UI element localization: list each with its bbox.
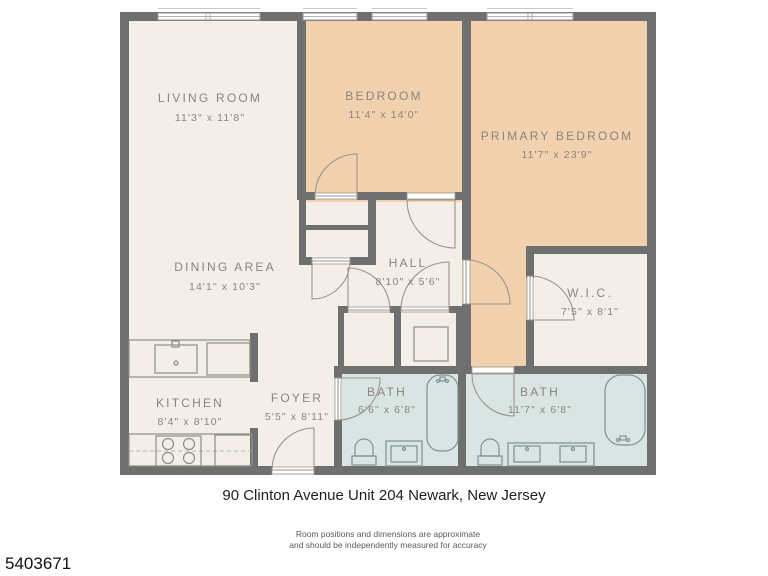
room-label-foyer: FOYER bbox=[271, 391, 323, 405]
room-label-bath-1: BATH bbox=[367, 385, 407, 399]
room-dims-kitchen: 8'4" x 8'10" bbox=[158, 416, 223, 428]
wall-segment bbox=[462, 16, 471, 198]
room-dims-living-room: 11'3" x 11'8" bbox=[175, 112, 245, 124]
wall-segment bbox=[462, 366, 472, 374]
wall-segment bbox=[394, 313, 401, 368]
address-title: 90 Clinton Avenue Unit 204 Newark, New J… bbox=[222, 487, 546, 504]
wall-segment bbox=[458, 366, 466, 466]
listing-id: 5403671 bbox=[5, 554, 71, 573]
wall-segment bbox=[299, 198, 306, 262]
wall-segment bbox=[514, 366, 656, 374]
room-dims-bedroom: 11'4" x 14'0" bbox=[348, 109, 419, 121]
wall-segment bbox=[350, 257, 376, 265]
window bbox=[303, 9, 357, 21]
wall-segment bbox=[120, 466, 272, 475]
room-label-dining-area: DINING AREA bbox=[174, 260, 276, 274]
window bbox=[487, 9, 573, 21]
wall-segment bbox=[462, 304, 471, 372]
room-label-hall: HALL bbox=[389, 256, 428, 270]
wall-segment bbox=[390, 306, 401, 313]
room-dims-wic: 7'5" x 8'1" bbox=[561, 306, 619, 318]
wall-segment bbox=[526, 254, 534, 278]
room-dims-bath-2: 11'7" x 6'8" bbox=[508, 404, 572, 416]
room-dims-primary-bedroom: 11'7" x 23'9" bbox=[521, 149, 592, 161]
wall-segment bbox=[647, 12, 656, 475]
wall-segment bbox=[334, 420, 342, 466]
wall-segment bbox=[456, 313, 462, 368]
wall-segment bbox=[462, 198, 471, 260]
room-dims-hall: 8'10" x 5'6" bbox=[376, 276, 441, 288]
window bbox=[158, 9, 260, 21]
room-dims-dining-area: 14'1" x 10'3" bbox=[189, 281, 261, 293]
wall-segment bbox=[250, 333, 258, 382]
room-label-living-room: LIVING ROOM bbox=[158, 91, 262, 105]
wall-segment bbox=[368, 198, 376, 265]
wall-segment bbox=[357, 192, 407, 200]
wall-segment bbox=[314, 466, 656, 475]
room-label-primary-bedroom: PRIMARY BEDROOM bbox=[481, 129, 634, 143]
floor-plan-canvas: LIVING ROOM 11'3" x 11'8" BEDROOM 11'4" … bbox=[0, 0, 768, 576]
wall-segment bbox=[449, 306, 462, 313]
wall-segment bbox=[334, 370, 342, 378]
room-label-bedroom: BEDROOM bbox=[345, 89, 422, 103]
wall-segment bbox=[526, 320, 534, 368]
disclaimer-line-2: and should be independently measured for… bbox=[289, 540, 487, 550]
wall-segment bbox=[455, 192, 471, 200]
wall-segment bbox=[297, 16, 306, 198]
wall-segment bbox=[338, 306, 344, 368]
disclaimer-line-1: Room positions and dimensions are approx… bbox=[296, 529, 481, 539]
room-label-bath-2: BATH bbox=[520, 385, 560, 399]
room-dims-foyer: 5'5" x 8'11" bbox=[265, 411, 329, 423]
room-label-wic: W.I.C. bbox=[567, 286, 613, 300]
floor-plan-page: LIVING ROOM 11'3" x 11'8" BEDROOM 11'4" … bbox=[0, 0, 768, 576]
window bbox=[372, 9, 427, 21]
wall-segment bbox=[526, 246, 656, 254]
wall-segment bbox=[334, 366, 466, 374]
room-dims-bath-1: 6'6" x 6'8" bbox=[358, 404, 416, 416]
floor-bedroom bbox=[300, 12, 471, 202]
wall-segment bbox=[299, 257, 312, 265]
room-label-kitchen: KITCHEN bbox=[156, 396, 224, 410]
wall-segment bbox=[306, 225, 368, 230]
wall-segment bbox=[120, 12, 129, 475]
